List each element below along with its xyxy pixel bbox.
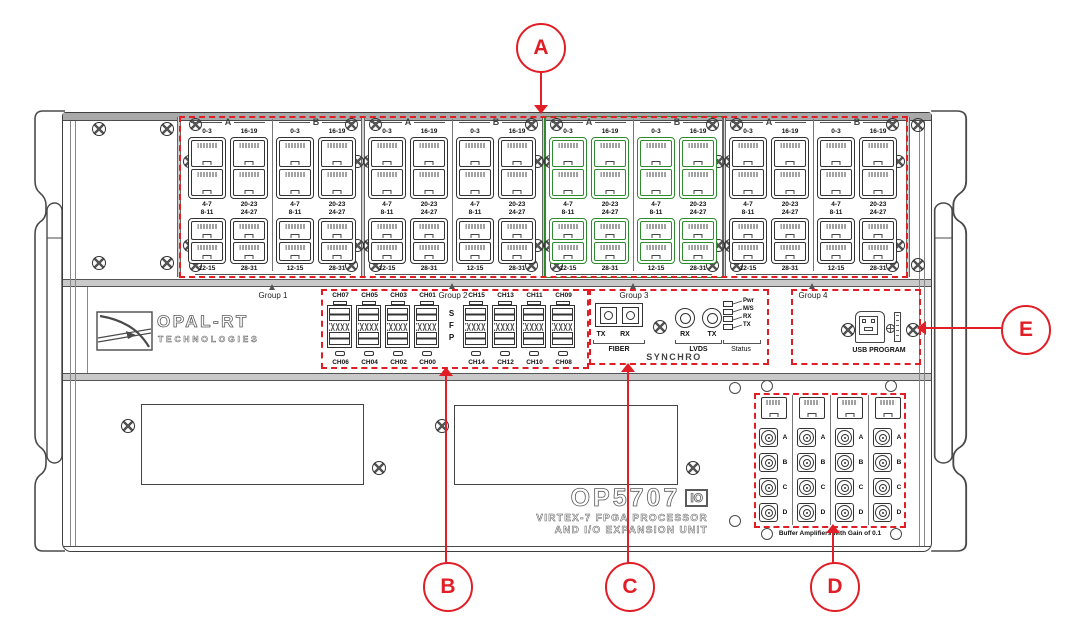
screw — [372, 461, 386, 475]
callout-c-letter: C — [622, 575, 637, 599]
callout-a-arrow — [534, 105, 548, 114]
callout-a: A — [516, 23, 566, 73]
chassis-fold-line — [70, 121, 71, 546]
callout-e-line — [926, 327, 1001, 330]
group4-label: Group 4 — [783, 291, 843, 300]
callout-b: B — [423, 562, 473, 612]
callout-d-letter: D — [827, 575, 842, 599]
callout-a-line — [540, 70, 543, 107]
callout-b-line — [445, 374, 448, 564]
region-a-box — [179, 116, 908, 278]
callout-c-arrow — [621, 363, 635, 372]
callout-d-arrow — [826, 524, 840, 533]
screw — [160, 256, 174, 270]
panel-hole — [761, 380, 773, 392]
panel-hole — [885, 380, 897, 392]
right-rack-ear — [930, 108, 972, 554]
group1-label: Group 1 — [243, 291, 303, 300]
group1-pointer-icon — [269, 284, 275, 290]
chassis: AB0-34-78-1112-1516-1920-2324-2728-310-3… — [62, 112, 932, 552]
product-branding: OP5707 IO VIRTEX-7 FPGA PROCESSOR AND I/… — [403, 485, 708, 536]
chassis-fold-line — [75, 121, 76, 546]
panel-hole — [729, 382, 741, 394]
product-line1: VIRTEX-7 FPGA PROCESSOR — [403, 513, 708, 525]
callout-e-letter: E — [1019, 318, 1033, 342]
mid-rail-1 — [63, 279, 931, 287]
mid-rail-2 — [63, 373, 931, 381]
region-e-box — [791, 289, 921, 365]
product-model: OP5707 — [571, 485, 681, 511]
screw — [160, 122, 174, 136]
callout-e-arrow — [917, 321, 926, 335]
region-b-box — [321, 289, 589, 369]
callout-c: C — [605, 562, 655, 612]
product-io-badge: IO — [685, 489, 708, 507]
callout-e: E — [1001, 305, 1051, 355]
op5707-front-panel-diagram: AB0-34-78-1112-1516-1920-2324-2728-310-3… — [0, 0, 1066, 624]
region-d-box — [754, 393, 906, 528]
callout-c-line — [627, 370, 630, 564]
expansion-cutout-1 — [141, 404, 364, 485]
screw — [911, 258, 925, 272]
group3-label: Group 3 — [604, 291, 664, 300]
brand-name: OPAL-RT — [157, 312, 249, 332]
panel-hole — [729, 515, 741, 527]
screw — [121, 419, 135, 433]
panel-edge-line — [87, 287, 88, 373]
screw — [92, 122, 106, 136]
screw — [911, 118, 925, 132]
product-line2: AND I/O EXPANSION UNIT — [403, 525, 708, 537]
bottom-rail — [63, 546, 931, 552]
callout-b-arrow — [439, 367, 453, 376]
callout-b-letter: B — [440, 575, 455, 599]
screw — [686, 461, 700, 475]
screw — [92, 256, 106, 270]
callout-d: D — [810, 562, 860, 612]
brand-subtitle: TECHNOLOGIES — [158, 334, 260, 344]
left-rack-ear — [30, 108, 66, 554]
region-c-box — [589, 289, 769, 365]
expansion-cutout-2 — [454, 405, 678, 485]
callout-a-letter: A — [533, 36, 548, 60]
group2-label: Group 2 — [423, 291, 483, 300]
opal-rt-logo-icon — [96, 311, 153, 351]
callout-d-line — [832, 531, 835, 564]
